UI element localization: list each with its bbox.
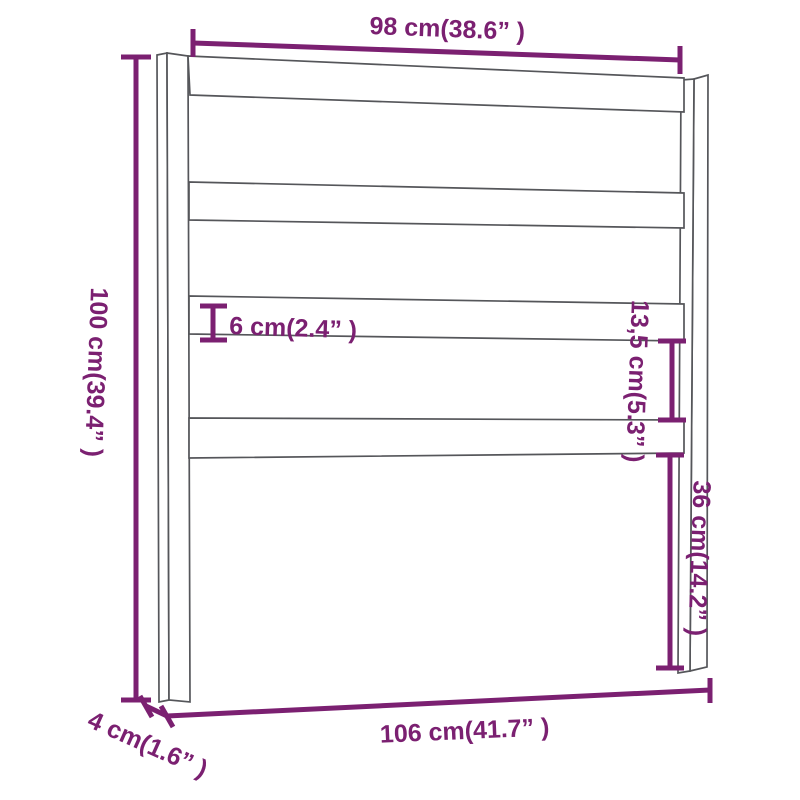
dim-leg-clearance-label: 36 cm(14.2” )	[682, 480, 715, 637]
slat-2	[189, 182, 684, 228]
top-rail	[188, 56, 684, 112]
dim-bottom-width-line	[167, 690, 710, 716]
dim-top-width-label: 98 cm(38.6” )	[369, 12, 526, 46]
dim-total-height: 100 cm(39.4” )	[79, 57, 151, 700]
dim-post-depth: 4 cm(1.6” )	[84, 696, 212, 783]
dim-slat-height-label: 6 cm(2.4” )	[229, 312, 358, 344]
left-post-front-face	[167, 53, 190, 702]
diagram-canvas: 98 cm(38.6” ) 100 cm(39.4” ) 6 cm(2.4” )…	[0, 0, 800, 800]
dim-bottom-width-label: 106 cm(41.7” )	[379, 713, 550, 748]
dim-total-height-label: 100 cm(39.4” )	[79, 287, 113, 457]
dim-post-depth-label: 4 cm(1.6” )	[84, 706, 212, 784]
dim-slat-gap-label: 13,5 cm(5.3” )	[620, 300, 654, 463]
dim-bottom-width: 106 cm(41.7” )	[161, 678, 710, 749]
slat-4	[189, 418, 684, 458]
dim-top-width-line	[193, 43, 680, 60]
headboard-dimension-diagram: 98 cm(38.6” ) 100 cm(39.4” ) 6 cm(2.4” )…	[0, 0, 800, 800]
